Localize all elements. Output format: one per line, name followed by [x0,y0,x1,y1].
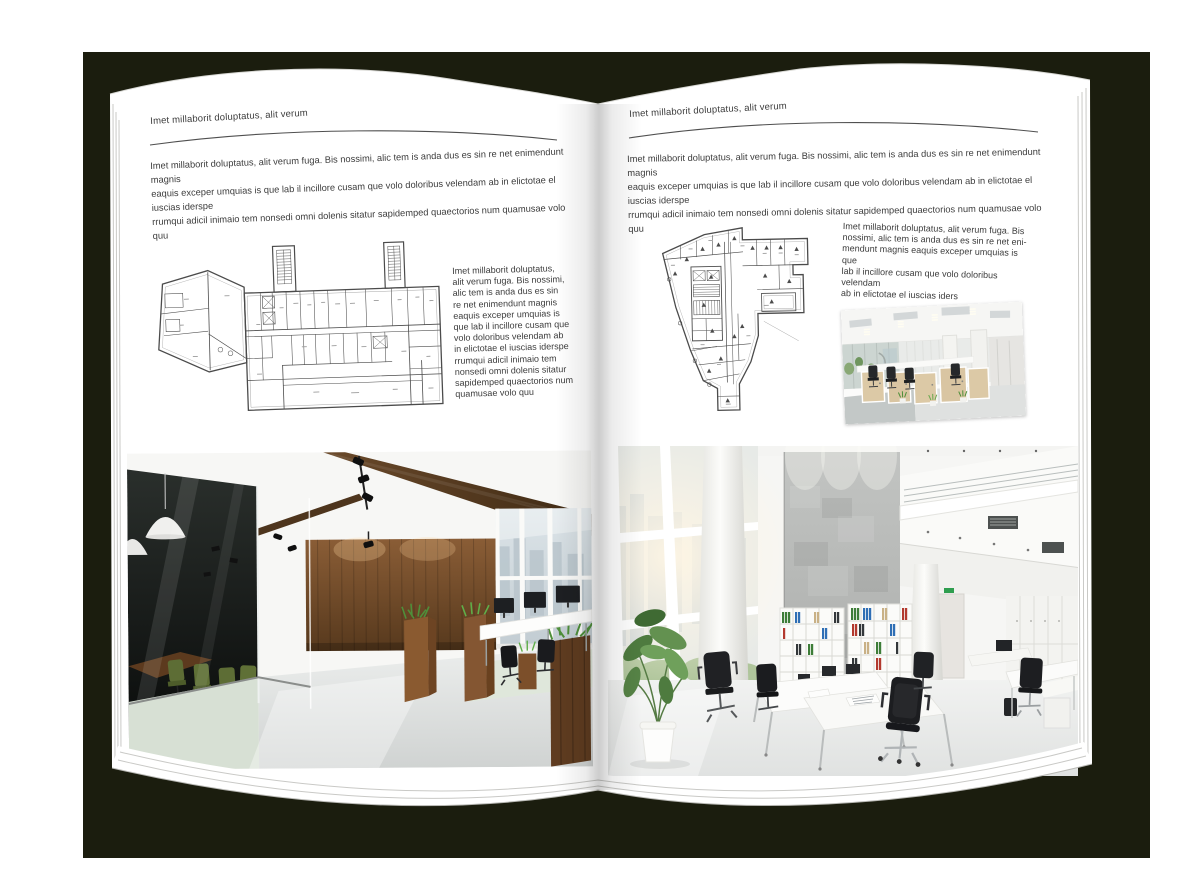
exit-sign [944,588,954,593]
left-page-sidebar: Imet millaborit doluptatus, alit verum f… [452,263,577,401]
brochure-mockup: Imet millaborit doluptatus, alit verum I… [0,0,1200,891]
plan-dimension-marks [179,289,437,399]
right-page-sidebar: Imet millaborit doluptatus, alit verum f… [841,221,1029,305]
left-page-intro: Imet millaborit doluptatus, alit verum f… [150,144,573,243]
left-office-photo [127,450,593,769]
right-floor-plan [644,216,826,418]
waste-bin [1004,698,1017,716]
right-office-photo-large [608,446,1078,776]
right-office-photo-small [841,302,1026,425]
left-floor-plan [149,228,453,418]
